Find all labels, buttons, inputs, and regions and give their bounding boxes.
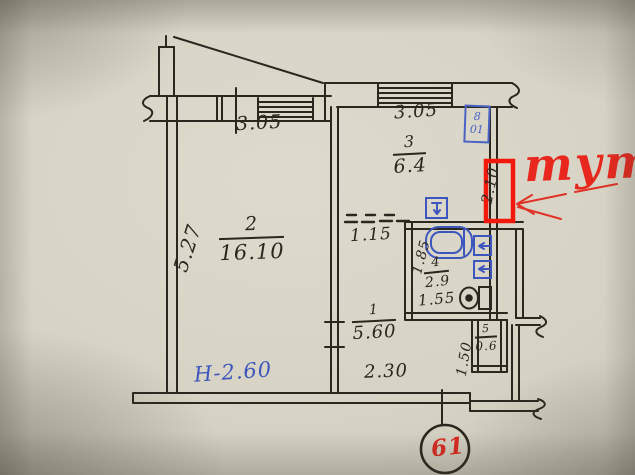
room-1-area: 5.60: [352, 321, 397, 344]
room-2-label: 2 16.10: [218, 213, 285, 264]
wall-right-ledge: [516, 318, 540, 325]
room-5-number: 5: [474, 322, 497, 338]
ceiling-height-note: Н-2.60: [193, 359, 272, 385]
dim-window-left: 3.05: [236, 113, 283, 134]
roof-diagonal: [174, 37, 323, 83]
sink-icon: [474, 236, 491, 255]
room-4-area: 2.9: [424, 271, 451, 290]
room-5-label: 5 0.6: [474, 322, 498, 352]
toilet-icon: [460, 287, 491, 309]
wall-bottom: [133, 393, 470, 403]
door-jambs: [325, 322, 344, 347]
wall-right-upper: [497, 222, 523, 318]
opening-dashes: [345, 215, 409, 222]
room-5-area: 0.6: [475, 337, 498, 353]
band-left-break: [143, 96, 152, 121]
dim-hall-bottom: 2.30: [364, 362, 409, 382]
wall-right-lower: [512, 325, 519, 401]
room-2-number: 2: [218, 213, 284, 240]
pillar: [159, 47, 174, 96]
room-2-area: 16.10: [219, 238, 285, 264]
band-right-break: [509, 83, 519, 108]
wall-middle: [331, 107, 338, 393]
dim-window-right: 3.05: [393, 101, 438, 122]
room-1-number: 1: [351, 301, 396, 323]
wall-ledge-break: [536, 316, 546, 337]
boiler-icon: [474, 261, 491, 278]
floorplan-drawing: [0, 0, 635, 475]
stove-icon: [426, 198, 447, 218]
room-4-label: 4 2.9: [422, 255, 451, 291]
stamp-line2: 01: [470, 124, 484, 137]
apartment-number: 61: [430, 434, 462, 460]
dim-opening: 1.15: [350, 226, 393, 245]
room-3-label: 3 6.4: [392, 132, 427, 177]
floorplan-photo: 3.05 3.05 3 6.4 2.10 8 01 тут 2 16.10 5.…: [0, 0, 635, 475]
dim-bath-width: 1.55: [417, 290, 456, 308]
blue-stamp: 8 01: [463, 105, 490, 144]
wall-bottom-step: [470, 393, 538, 411]
band-divider: [217, 96, 222, 121]
here-marker-text: тут: [523, 134, 635, 193]
room-3-area: 6.4: [393, 154, 427, 178]
room-3-number: 3: [392, 132, 426, 156]
room-1-label: 1 5.60: [351, 301, 397, 344]
